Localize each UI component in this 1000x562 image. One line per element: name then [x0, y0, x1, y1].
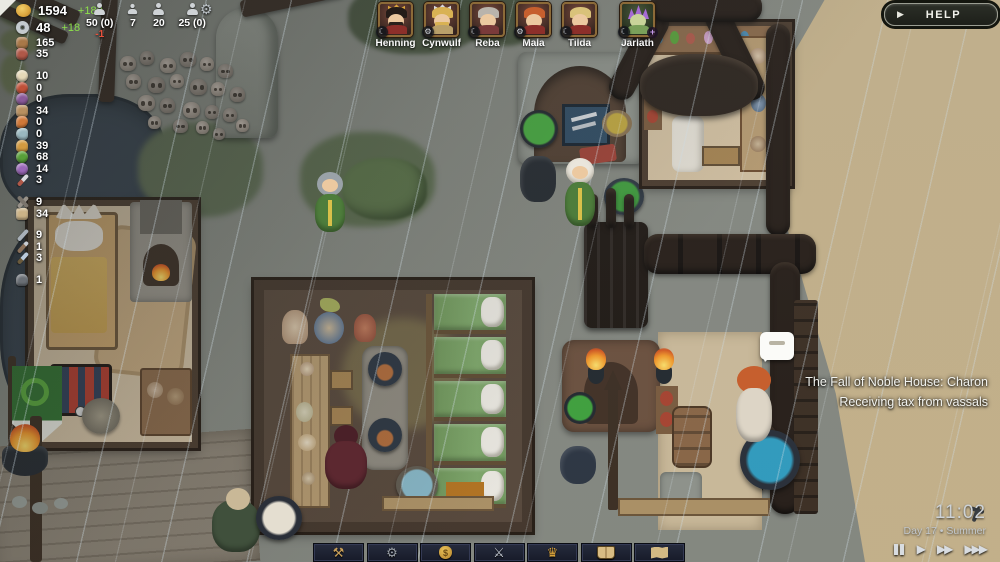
silver-ring-icon — [16, 21, 29, 34]
portrait-name: Tilda — [568, 38, 591, 49]
silver-amount: 48 — [36, 20, 50, 35]
resource-wheat: 39 — [16, 140, 54, 152]
mortar-bowl — [602, 110, 632, 137]
portrait-frame[interactable]: ☾ — [378, 2, 413, 37]
bench[interactable] — [702, 146, 740, 166]
mug — [300, 362, 314, 376]
cauldron — [368, 418, 402, 452]
moon-icon: ☾ — [618, 26, 630, 38]
portrait-cynwulf[interactable]: ⚙ Cynwulf — [423, 2, 460, 49]
character-portraits-bar: ☾ Henning ⚙ Cynwulf ☾ Reba — [377, 2, 656, 49]
population-citizens[interactable]: 50 (0) -1 — [86, 3, 113, 40]
tavern-inn[interactable] — [254, 280, 532, 532]
portrait-name: Jarlath — [621, 38, 654, 49]
pillow — [481, 427, 504, 457]
knowledge-book-icon — [597, 546, 615, 559]
military-swords-icon: ⚔ — [493, 546, 505, 559]
kingdom-button[interactable]: ♛ — [527, 543, 578, 562]
clock-panel: 11:02 Day 17 • Summer ▶ ▶▶ ▶▶▶ — [894, 502, 986, 556]
unemployed-icon — [152, 3, 165, 15]
time-display: 11:02 — [894, 502, 986, 524]
cook-pot[interactable] — [256, 496, 302, 540]
bottle — [296, 402, 313, 422]
portrait-henning[interactable]: ☾ Henning — [377, 2, 414, 49]
pillow — [481, 384, 504, 414]
portrait-reba[interactable]: ☾ Reba — [469, 2, 506, 49]
beer-icon — [16, 105, 28, 117]
villager-patron[interactable] — [325, 425, 367, 491]
cabbage-icon — [16, 151, 28, 163]
pause-icon[interactable] — [894, 544, 904, 555]
plant-leaves — [320, 298, 340, 312]
dormitory-beds[interactable] — [434, 294, 506, 508]
portrait-frame[interactable]: ☾ — [470, 2, 505, 37]
plum-icon — [16, 93, 28, 105]
bar-table[interactable] — [290, 354, 330, 508]
milk-icon — [16, 70, 28, 82]
unemployed-count: 20 — [153, 17, 165, 29]
resource-meat: 35 — [16, 49, 54, 61]
notification-feed: The Fall of Noble House: Charon Receivin… — [805, 372, 988, 412]
game-world — [0, 0, 1000, 562]
side-table[interactable] — [140, 368, 192, 436]
moon-icon: ☾ — [468, 26, 480, 38]
fire-flame — [654, 348, 674, 370]
resource-apples: 0 — [16, 82, 54, 94]
resource-panel: 165 35 10 0 0 34 0 0 39 68 14 3 9 34 9 1… — [16, 37, 54, 286]
clay-jug — [147, 382, 163, 398]
help-label: HELP — [904, 9, 983, 21]
citizen-delta: -1 — [95, 29, 104, 40]
villager-cook[interactable] — [212, 488, 262, 554]
carved-post — [608, 386, 618, 510]
world-map-icon — [651, 547, 668, 559]
resource-fish: 0 — [16, 128, 54, 140]
wheat-icon — [16, 140, 28, 152]
build-button[interactable]: ⚒ — [313, 543, 364, 562]
bow-icon — [16, 229, 28, 241]
resource-carrots: 0 — [16, 117, 54, 129]
economy-button[interactable]: $ — [420, 543, 471, 562]
sword-icon — [16, 252, 28, 264]
portrait-frame[interactable]: ☾ + — [620, 2, 655, 37]
bowl — [298, 434, 316, 451]
population-panel: 50 (0) -1 7 20 25 (0) — [86, 3, 206, 40]
bed[interactable] — [434, 424, 506, 464]
apple-icon — [16, 82, 28, 94]
help-button[interactable]: ▶ HELP — [884, 3, 998, 26]
resource-milk: 10 — [16, 70, 54, 82]
fireplace[interactable] — [130, 202, 192, 302]
bread-icon — [16, 37, 28, 49]
portrait-tilda[interactable]: ☾ Tilda — [561, 2, 598, 49]
resource-bows: 9 — [16, 229, 54, 241]
skull-pile[interactable] — [108, 48, 258, 143]
pillow — [481, 340, 504, 370]
resource-tools: 9 — [16, 196, 54, 208]
knife-icon — [16, 174, 28, 186]
resource-plums: 0 — [16, 93, 54, 105]
economy-moneybag-icon: $ — [439, 546, 452, 559]
stack-pipe — [606, 188, 616, 228]
purple-buff-icon: + — [647, 27, 658, 38]
gear-icon: ⚙ — [422, 26, 434, 38]
stone-pillar — [672, 116, 704, 172]
gear-icon: ⚙ — [514, 26, 526, 38]
notification-item[interactable]: The Fall of Noble House: Charon — [805, 372, 988, 392]
blanket — [51, 257, 107, 333]
speed-controls: ▶ ▶▶ ▶▶▶ — [894, 542, 986, 556]
bubble-tail — [762, 355, 772, 369]
banner-knot-emblem — [21, 378, 49, 406]
child-icon — [127, 4, 138, 14]
portrait-jarlath[interactable]: ☾ + Jarlath — [619, 2, 656, 49]
fire-flame — [10, 424, 40, 452]
bench[interactable] — [618, 498, 770, 516]
stool[interactable] — [330, 370, 353, 390]
resource-armor: 1 — [16, 274, 54, 286]
villager-alchemist[interactable] — [560, 158, 600, 230]
speech-bubble[interactable] — [760, 332, 794, 360]
dark-cauldron — [560, 446, 596, 484]
wood-beam — [239, 0, 344, 18]
resource-knives: 3 — [16, 175, 54, 187]
visitor-count: 25 (0) — [178, 17, 205, 29]
villager-monk[interactable] — [312, 172, 348, 234]
bed[interactable] — [434, 381, 506, 421]
resource-spears: 1 — [16, 241, 54, 253]
child-count: 7 — [130, 17, 136, 29]
resource-beer: 34 — [16, 105, 54, 117]
management-button[interactable]: ⚙ — [367, 543, 418, 562]
bench[interactable] — [382, 496, 494, 511]
resource-scrolls: 34 — [16, 208, 54, 220]
notification-item[interactable]: Receiving tax from vassals — [805, 392, 988, 412]
resource-cabbage: 68 — [16, 151, 54, 163]
management-gear-icon: ⚙ — [386, 546, 398, 559]
meat-icon — [16, 48, 28, 60]
moon-icon: ☾ — [560, 26, 572, 38]
date-display: Day 17 • Summer — [894, 525, 986, 537]
pillow — [55, 221, 103, 251]
stone — [54, 498, 68, 509]
distillery-pipe — [766, 24, 790, 236]
kingdom-crown-icon: ♛ — [547, 546, 559, 559]
moon-icon: ☾ — [376, 26, 388, 38]
portrait-name: Henning — [376, 38, 416, 49]
knowledge-button[interactable] — [581, 543, 632, 562]
silver-delta: +18 — [61, 22, 80, 34]
gear-icon[interactable]: ⚙ — [200, 1, 213, 18]
pottery-shelf[interactable] — [282, 302, 402, 352]
scroll-icon — [16, 208, 28, 220]
pillow — [481, 297, 504, 327]
portrait-frame[interactable]: ⚙ — [516, 2, 551, 37]
resource-bread: 165 — [16, 37, 54, 49]
fast-forward-icon[interactable]: ▶▶ — [937, 542, 951, 556]
visitor-icon — [186, 3, 199, 15]
black-kettle — [520, 156, 556, 202]
stack-pipe — [624, 194, 634, 228]
gold-amount: 1594 — [38, 3, 67, 18]
distillery-pipe — [650, 0, 762, 22]
villager-brewer[interactable] — [732, 366, 776, 444]
plant-pot — [314, 312, 344, 344]
resource-grapes: 14 — [16, 163, 54, 175]
bottom-toolbar: ⚒ ⚙ $ ⚔ ♛ — [313, 543, 685, 562]
stone — [32, 502, 48, 514]
grindstone[interactable] — [82, 398, 120, 434]
world-map-button[interactable] — [634, 543, 685, 562]
portrait-frame[interactable]: ⚙ — [424, 2, 459, 37]
cooking-hearth[interactable] — [362, 346, 408, 470]
green-cauldron — [564, 392, 596, 424]
portrait-name: Reba — [475, 38, 499, 49]
military-button[interactable]: ⚔ — [474, 543, 525, 562]
distillery-tank[interactable] — [640, 54, 758, 116]
resource-swords: 3 — [16, 253, 54, 265]
robe-stripe — [328, 200, 332, 226]
bubble-glyph — [769, 341, 785, 345]
population-unemployed[interactable]: 20 — [152, 3, 165, 40]
grapes-icon — [16, 163, 28, 175]
play-icon[interactable]: ▶ — [917, 542, 924, 556]
fish-icon — [16, 128, 28, 140]
gold-coins-icon — [16, 4, 31, 17]
build-hammer-icon: ⚒ — [333, 546, 345, 559]
citizen-count: 50 (0) — [86, 17, 113, 29]
game-screen: 1594 +180 48 +18 50 (0) -1 7 20 25 (0) ⚙… — [0, 0, 1000, 562]
antler-decor — [55, 203, 103, 219]
chimney-stack[interactable] — [584, 222, 648, 328]
fire-flame — [586, 348, 606, 370]
portrait-name: Mala — [522, 38, 544, 49]
clay-jug — [167, 388, 184, 405]
barrel[interactable] — [672, 406, 712, 468]
chimney — [140, 200, 182, 234]
fire-flame — [152, 264, 170, 281]
bed[interactable] — [434, 294, 506, 334]
portrait-mala[interactable]: ⚙ Mala — [515, 2, 552, 49]
armor-icon — [16, 274, 28, 286]
bed-double[interactable] — [46, 212, 118, 350]
stool[interactable] — [330, 406, 353, 426]
green-cauldron — [520, 110, 558, 148]
portrait-name: Cynwulf — [422, 38, 461, 49]
robe-stripe — [578, 188, 582, 220]
mug — [302, 472, 315, 485]
citizen-icon — [93, 3, 106, 15]
bush[interactable] — [342, 158, 427, 220]
play-triangle-icon: ▶ — [897, 9, 904, 20]
population-children[interactable]: 7 — [126, 3, 139, 40]
bed[interactable] — [434, 337, 506, 377]
carrot-icon — [16, 116, 28, 128]
stone — [12, 496, 27, 508]
tools-icon — [16, 196, 28, 208]
portrait-frame[interactable]: ☾ — [562, 2, 597, 37]
amphora — [282, 310, 308, 344]
cauldron — [368, 352, 402, 386]
red-vase — [354, 314, 376, 342]
spear-icon — [16, 241, 28, 253]
fastest-forward-icon[interactable]: ▶▶▶ — [964, 542, 986, 556]
